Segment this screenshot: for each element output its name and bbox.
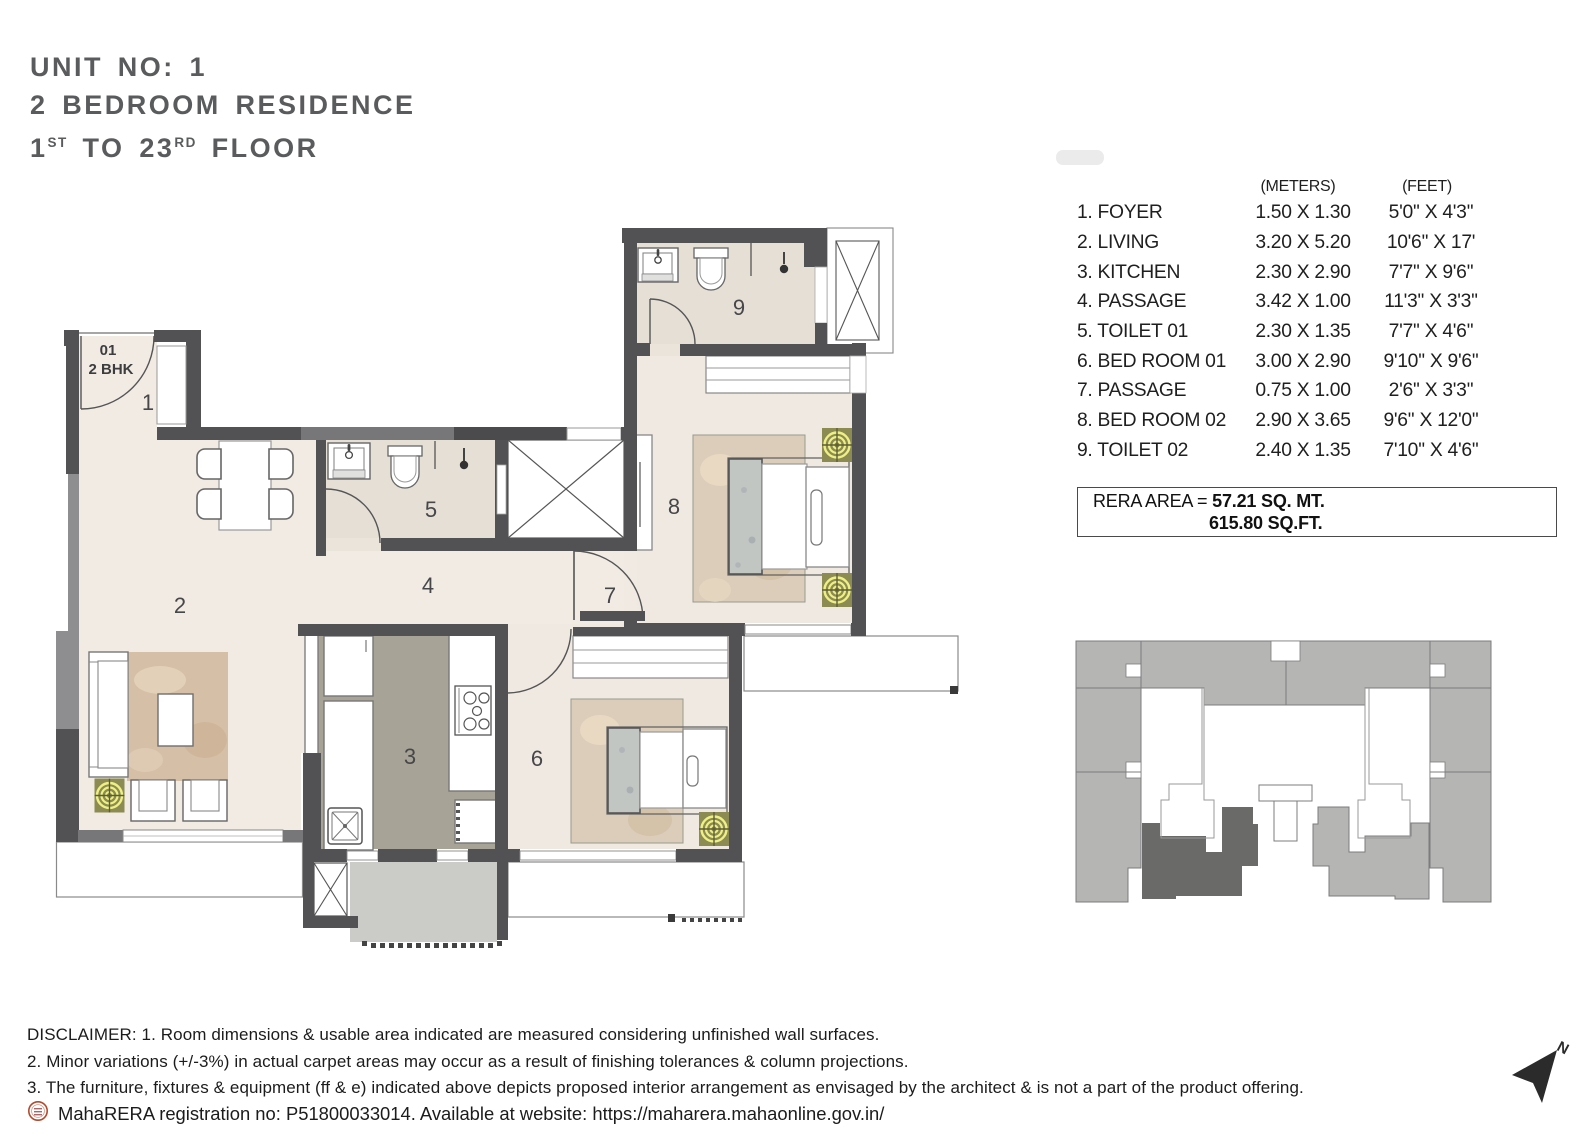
svg-text:1: 1 xyxy=(142,390,154,415)
svg-text:8: 8 xyxy=(668,494,680,519)
svg-text:5: 5 xyxy=(425,497,437,522)
svg-text:7: 7 xyxy=(604,583,616,608)
svg-text:9: 9 xyxy=(733,295,745,320)
svg-text:N: N xyxy=(1554,1038,1572,1058)
svg-text:4: 4 xyxy=(422,573,434,598)
svg-text:3: 3 xyxy=(404,744,416,769)
svg-text:6: 6 xyxy=(531,746,543,771)
svg-text:2 BHK: 2 BHK xyxy=(88,361,133,378)
svg-text:2: 2 xyxy=(174,593,186,618)
svg-text:01: 01 xyxy=(100,342,117,359)
